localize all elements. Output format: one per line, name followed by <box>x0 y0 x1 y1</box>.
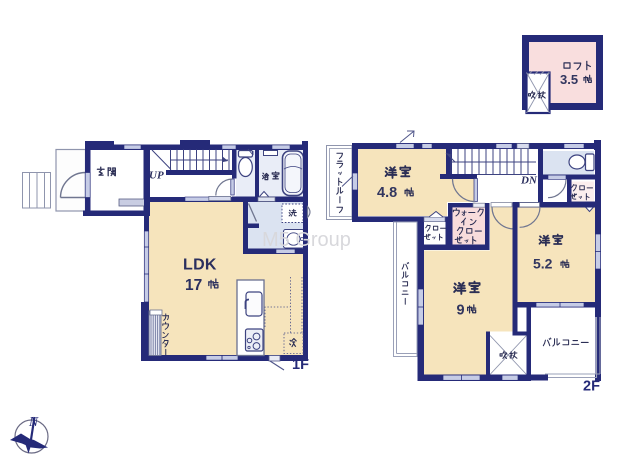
svg-text:5.2: 5.2 <box>533 256 553 272</box>
svg-text:UP: UP <box>149 170 164 182</box>
svg-text:3.5: 3.5 <box>560 72 578 87</box>
svg-text:17: 17 <box>185 277 202 294</box>
svg-text:M5 Group: M5 Group <box>262 229 351 251</box>
svg-text:N: N <box>28 414 39 429</box>
svg-text:LDK: LDK <box>183 257 217 274</box>
svg-text:1F: 1F <box>292 357 309 373</box>
svg-text:9: 9 <box>457 303 465 319</box>
svg-text:4.8: 4.8 <box>377 185 397 201</box>
svg-text:2F: 2F <box>583 379 600 395</box>
svg-text:DN: DN <box>520 175 538 187</box>
